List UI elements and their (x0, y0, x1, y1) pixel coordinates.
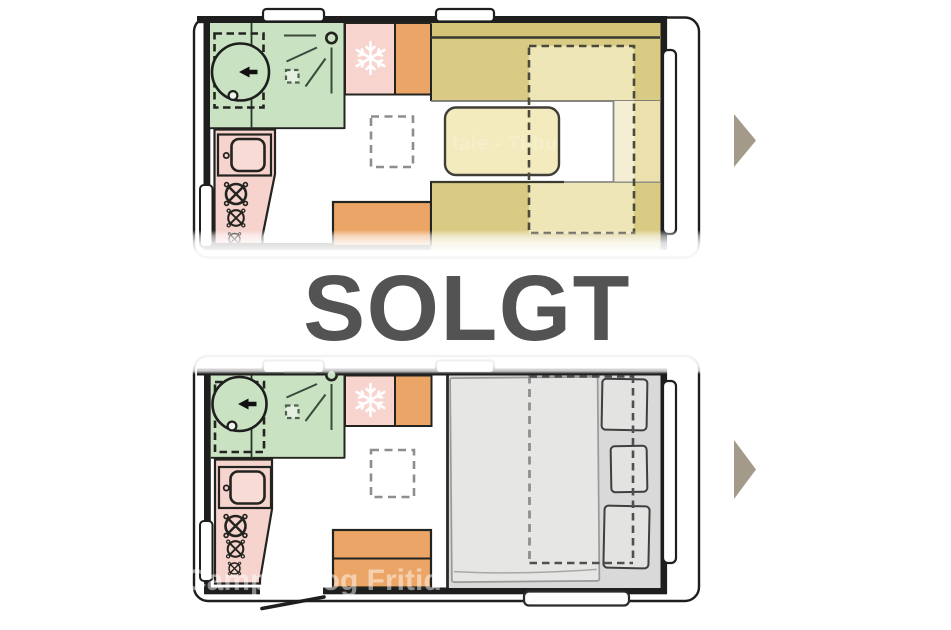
svg-text:SOLGT: SOLGT (303, 256, 631, 360)
svg-text:tale - Tilbu: tale - Tilbu (452, 133, 558, 155)
svg-text:Camping og Fritid: Camping og Fritid (185, 564, 442, 597)
